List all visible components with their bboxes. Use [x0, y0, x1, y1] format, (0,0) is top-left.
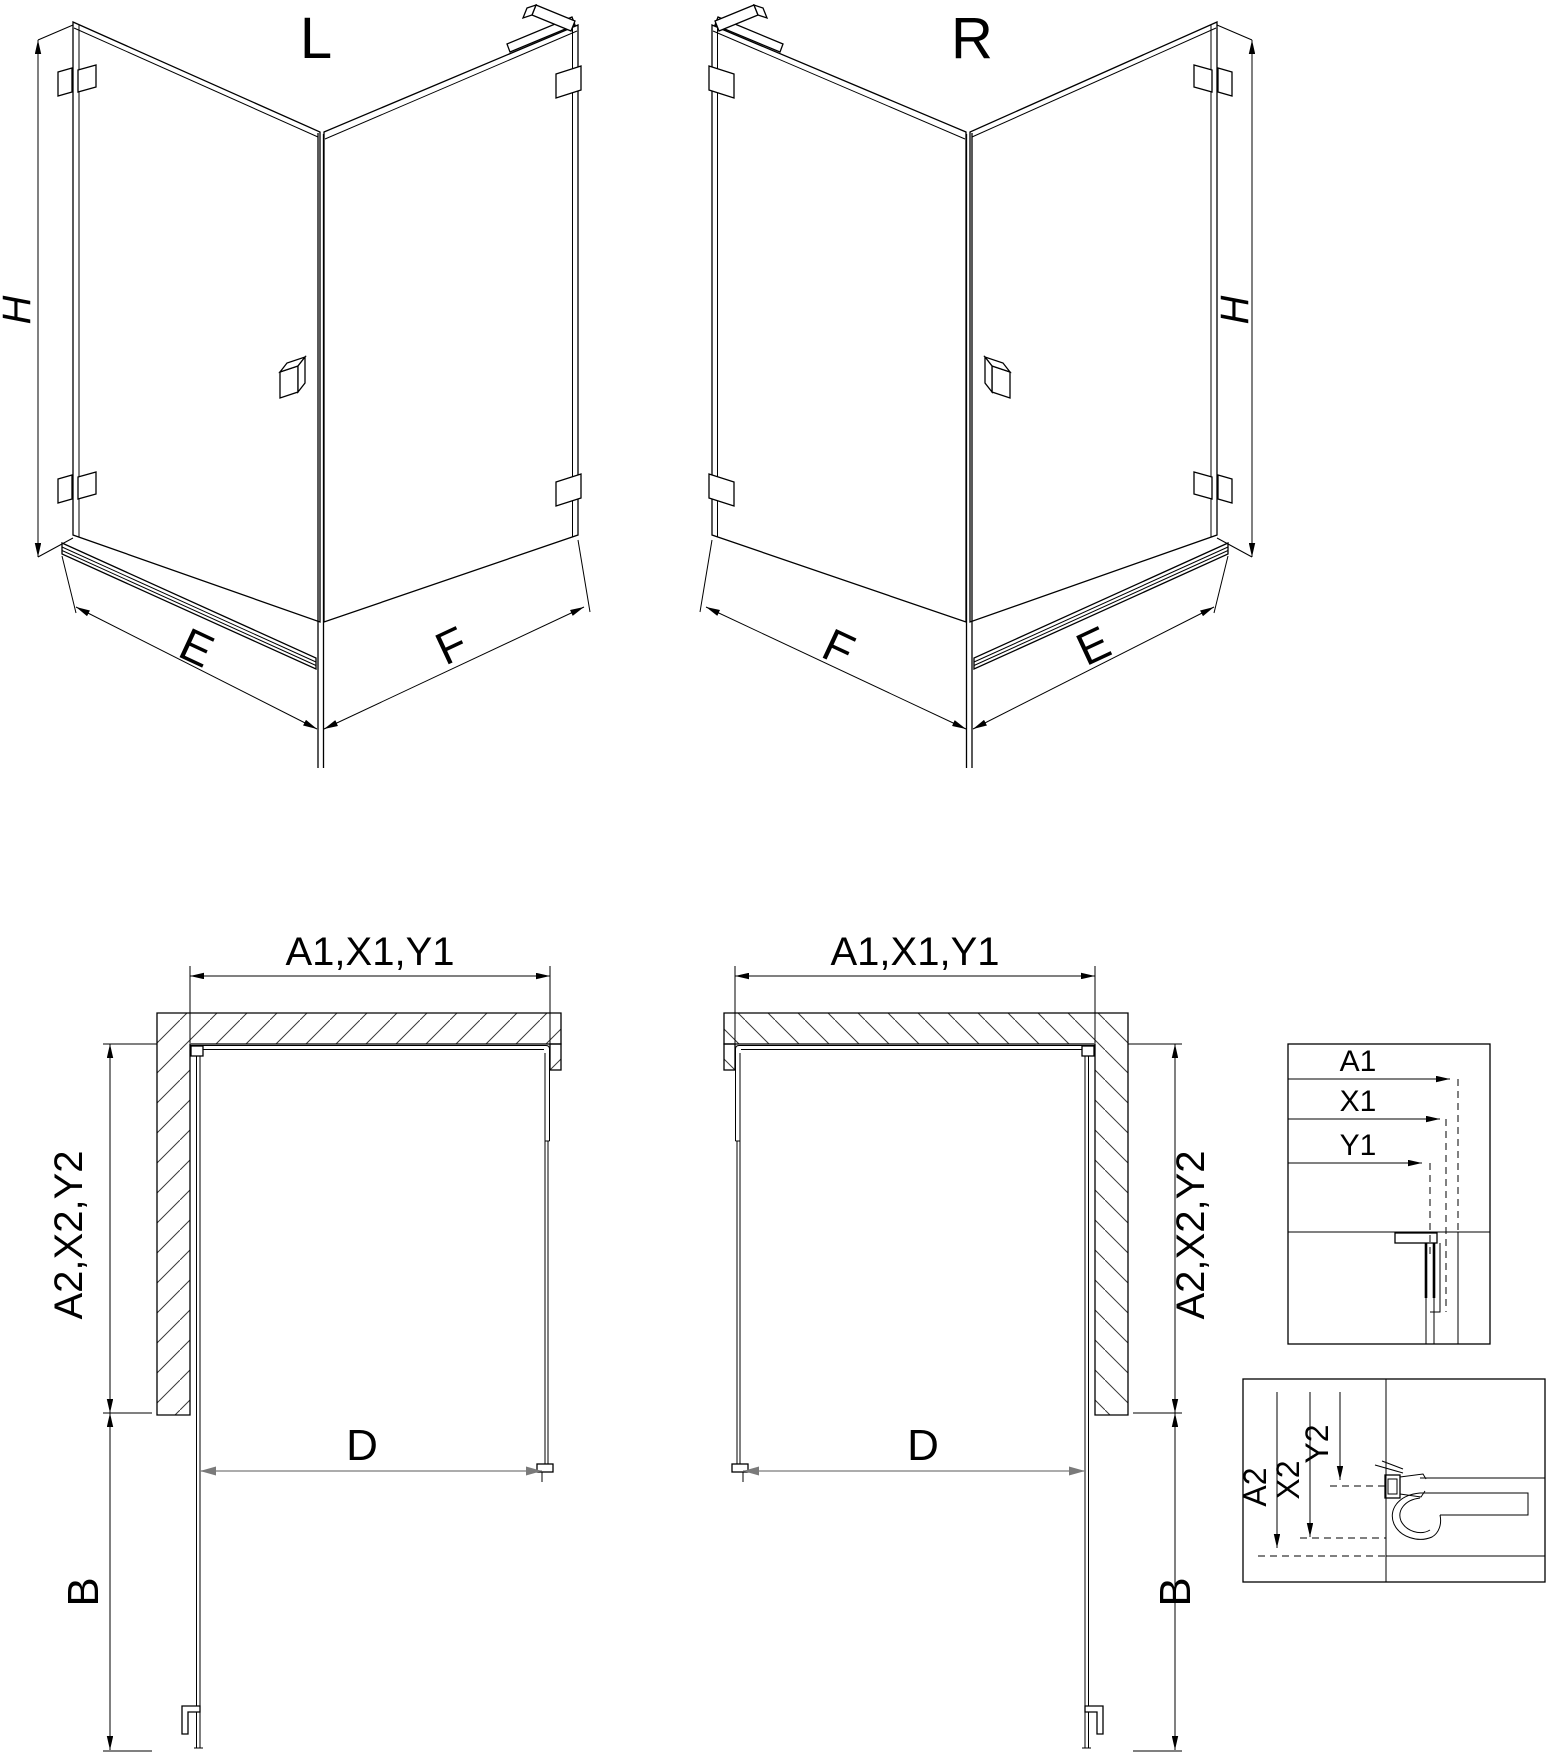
plan-right-depth-label: A2,X2,Y2: [1169, 1150, 1213, 1319]
detail-top-label-a1: A1: [1340, 1045, 1377, 1078]
depth-dimension: [103, 1044, 157, 1413]
detail-bottom-label-x2: X2: [1270, 1460, 1306, 1499]
plan-view-geometry: [103, 966, 561, 1751]
fixed-panel: [324, 25, 578, 622]
wall-stub: [550, 1044, 561, 1070]
wall-bracket-bottom: [556, 474, 581, 506]
side-f-label-right: F: [815, 618, 862, 677]
plan-left-width-label: A1,X1,Y1: [285, 930, 454, 974]
variant-label-right: R: [951, 6, 993, 71]
shower-enclosure-diagram: L H E F R H F E: [0, 0, 1561, 1756]
hinge-top: [58, 65, 96, 96]
plan-left-depth-label: A2,X2,Y2: [47, 1150, 91, 1319]
wall-hatched: [157, 1013, 561, 1415]
plan-right-opening-label: D: [907, 1421, 939, 1470]
detail-box-top: A1 X1 Y1: [1288, 1044, 1490, 1344]
plan-left-projection-label: B: [59, 1577, 108, 1606]
wall-bracket-top: [556, 66, 581, 98]
hinge-bottom: [58, 472, 96, 503]
detail-bottom-label-y2: Y2: [1299, 1424, 1335, 1463]
detail-bottom-label-a2: A2: [1237, 1467, 1273, 1506]
height-label-right: H: [1213, 295, 1257, 324]
detail-top-bracket: [1395, 1233, 1437, 1243]
technical-drawing-page: L H E F R H F E: [0, 0, 1561, 1756]
door-panel: [73, 22, 320, 622]
plan-right-projection-label: B: [1151, 1577, 1200, 1606]
detail-top-label-y1: Y1: [1340, 1129, 1377, 1162]
support-arm-plan: [190, 1046, 550, 1142]
door-hinge-plan: [191, 1046, 203, 1056]
side-e-label-right: E: [1068, 615, 1118, 675]
detail-bottom-door-seal: [1375, 1461, 1426, 1498]
detail-box-bottom: A2 X2 Y2: [1237, 1379, 1545, 1582]
detail-top-label-x1: X1: [1340, 1085, 1377, 1118]
side-f-label-left: F: [428, 616, 475, 675]
plan-left-opening-label: D: [346, 1421, 378, 1470]
fixed-panel-plan: [545, 1141, 548, 1464]
door-handle-plan: [182, 1706, 200, 1734]
variant-label-left: L: [300, 6, 332, 71]
iso-view-geometry: [38, 5, 590, 768]
projection-dimension: [103, 1413, 152, 1751]
height-label-left: H: [0, 295, 39, 324]
plan-view-geometry-mirrored: [724, 966, 1182, 1751]
base-dimensions: [62, 540, 590, 729]
side-e-label-left: E: [172, 617, 222, 677]
door-open-plan: [194, 1056, 203, 1748]
door-knob: [280, 357, 305, 398]
iso-view-geometry-mirrored: [700, 5, 1252, 768]
plan-right-width-label: A1,X1,Y1: [830, 930, 999, 974]
detail-bottom-tray-profile: [1392, 1478, 1545, 1539]
corner-post: [318, 133, 324, 768]
